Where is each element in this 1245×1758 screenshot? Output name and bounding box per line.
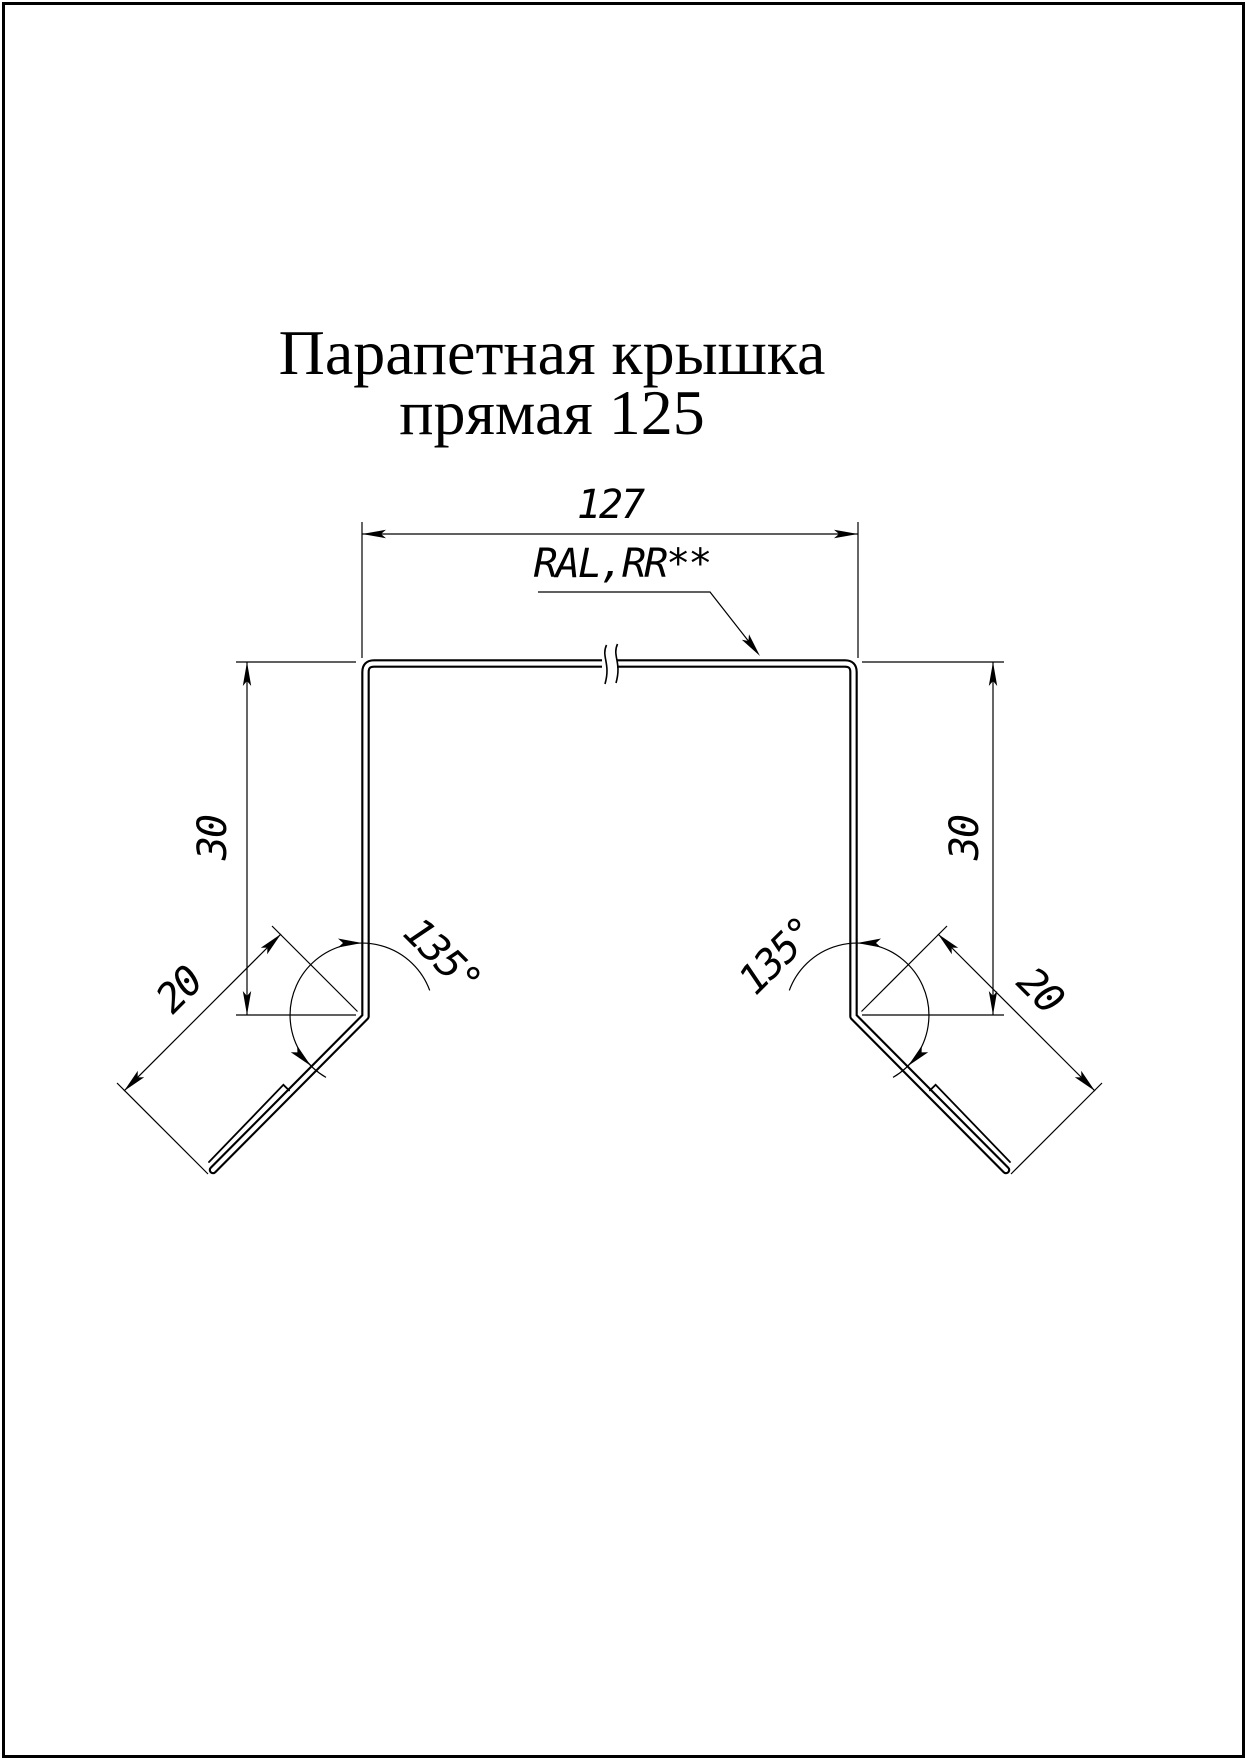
drawing-sheet: Парапетная крышка прямая 125 127 R [0, 0, 1245, 1758]
dim-flange-left: 20 [117, 926, 358, 1174]
dim-height-left: 30 [190, 662, 356, 1015]
break-symbol [602, 644, 618, 684]
dim-angle-left: 135° [290, 909, 489, 1078]
dim-135R-arrow-wall [857, 939, 881, 948]
dim-135R-arrow-flange [908, 1046, 928, 1066]
profile-sheet-outer [213, 664, 1006, 1171]
dim-20R-ext-lower [1011, 1083, 1102, 1174]
coating-label: RAL,RR** [534, 541, 711, 587]
coating-leader-line [538, 592, 757, 652]
dim-30L-value: 30 [190, 815, 236, 861]
dim-127-value: 127 [577, 482, 645, 528]
dim-135L-arrow-flange [291, 1046, 311, 1066]
hem-left [209, 1085, 289, 1162]
dim-height-right: 30 [862, 662, 1004, 1015]
dim-angle-right: 135° [730, 909, 929, 1078]
profile-sheet-core [213, 664, 1006, 1171]
title-line2: прямая 125 [399, 377, 705, 448]
dim-135R-value: 135° [730, 909, 825, 1004]
dim-135R-arc [789, 943, 929, 1077]
dim-20L-ext-upper [272, 926, 358, 1012]
dim-135L-value: 135° [394, 909, 489, 1004]
dim-135L-arrow-wall [338, 939, 362, 948]
dim-30R-value: 30 [942, 815, 988, 861]
dim-20L-line [124, 934, 281, 1091]
profile-outline [209, 664, 1010, 1171]
dim-20R-ext-upper [862, 926, 948, 1012]
dim-135L-arc [290, 943, 430, 1077]
coating-leader-arrow [742, 634, 760, 656]
coating-callout: RAL,RR** [534, 541, 760, 656]
technical-drawing: Парапетная крышка прямая 125 127 R [0, 0, 1245, 1758]
hem-right [930, 1085, 1010, 1162]
dim-flange-right: 20 [862, 926, 1103, 1174]
dim-20L-ext-lower [117, 1083, 208, 1174]
dim-20R-line [938, 934, 1095, 1091]
